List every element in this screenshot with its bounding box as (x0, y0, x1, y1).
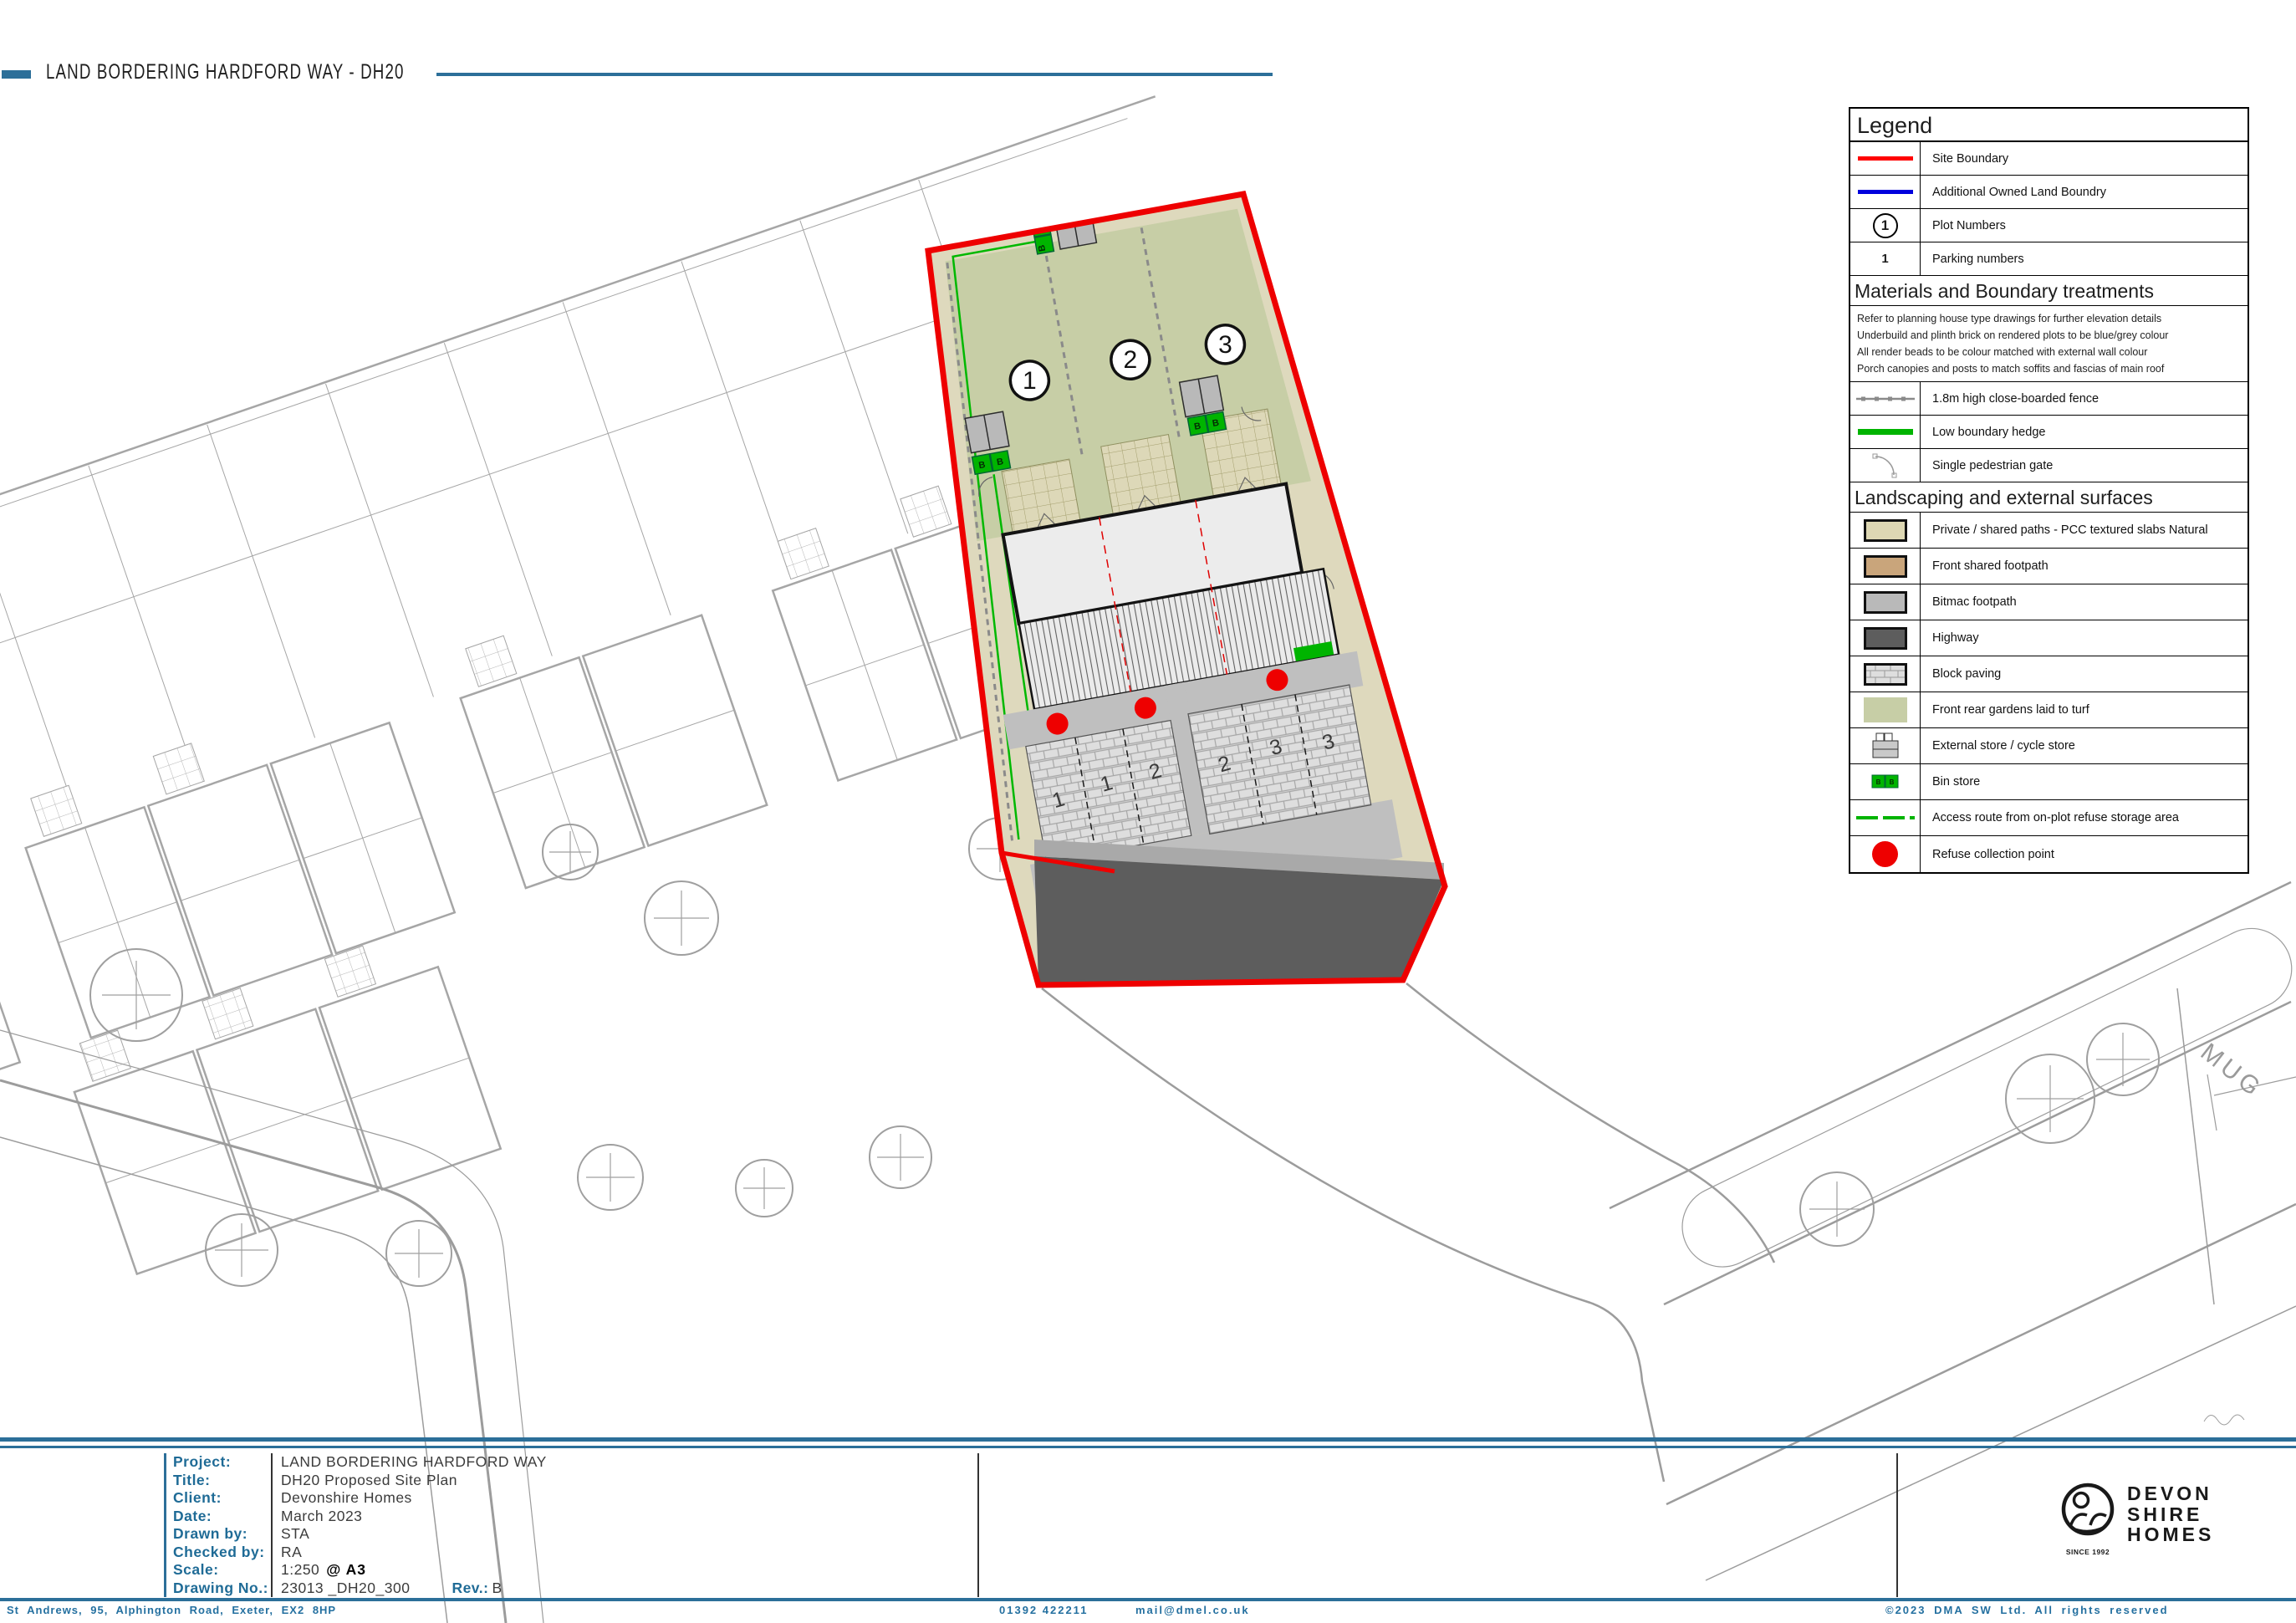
pedestrian-gate-icon (1869, 452, 1902, 480)
field-project: Project: LAND BORDERING HARDFORD WAY (166, 1453, 977, 1472)
legend-row-plot-numbers: 1 Plot Numbers (1850, 209, 2248, 242)
field-checked-by: Checked by: RA (166, 1544, 977, 1562)
legend-row-turf: Front rear gardens laid to turf (1850, 692, 2248, 728)
plot-number: 3 (1218, 331, 1232, 359)
field-date: Date: March 2023 (166, 1508, 977, 1526)
field-drawn-by: Drawn by: STA (166, 1525, 977, 1544)
block-paving-swatch (1864, 663, 1907, 686)
landscaping-section-title: Landscaping and external surfaces (1850, 482, 2248, 513)
footer-copyright: ©2023 DMA SW Ltd. All rights reserved (1885, 1604, 2169, 1616)
materials-notes: Refer to planning house type drawings fo… (1850, 306, 2248, 382)
footer-phone: 01392 422211 (999, 1604, 1088, 1616)
plot-number: 2 (1124, 346, 1138, 374)
legend-row-front-footpath: Front shared footpath (1850, 549, 2248, 584)
legend-row-hedge: Low boundary hedge (1850, 416, 2248, 449)
legend-row-refuse-point: Refuse collection point (1850, 836, 2248, 872)
legend-row-block-paving: Block paving (1850, 656, 2248, 692)
legend-row-gate: Single pedestrian gate (1850, 449, 2248, 482)
header-rule (436, 73, 1273, 76)
turf-swatch (1864, 697, 1907, 722)
street-name-label: MUG (2196, 1039, 2268, 1104)
legend-row-bin-store: B B Bin store (1850, 764, 2248, 800)
legend-panel: Legend Site Boundary Additional Owned La… (1849, 107, 2249, 874)
svg-text:B: B (1889, 778, 1894, 786)
field-drawing-no: Drawing No.: 23013 _DH20_300 Rev.: B (166, 1580, 977, 1598)
header-accent-dash (2, 70, 31, 79)
legend-row-owned-boundary: Additional Owned Land Boundry (1850, 176, 2248, 209)
footer-rule (0, 1598, 2296, 1601)
logo-tagline: SINCE 1992 (2059, 1548, 2117, 1556)
legend-row-fence: 1.8m high close-boarded fence (1850, 382, 2248, 416)
separator-line-top (0, 1437, 2296, 1442)
rev-value: B (492, 1580, 502, 1597)
owned-boundary-line-icon (1858, 190, 1913, 194)
bitmac-swatch (1864, 591, 1907, 614)
scale-paper-size: @ A3 (326, 1561, 366, 1579)
site-boundary-line-icon (1858, 156, 1913, 161)
parking-number-icon: 1 (1881, 252, 1888, 266)
bin-store-icon: B B (1870, 773, 1901, 790)
slabs-swatch (1864, 519, 1907, 542)
legend-row-bitmac: Bitmac footpath (1850, 584, 2248, 620)
plot-number-circle-icon: 1 (1873, 213, 1898, 238)
devonshire-homes-logo: SINCE 1992 DEVON SHIRE HOMES (2059, 1478, 2214, 1556)
field-title: Title: DH20 Proposed Site Plan (166, 1472, 977, 1490)
devonshire-homes-logo-mark (2059, 1478, 2117, 1544)
refuse-point-icon (1872, 841, 1898, 867)
field-client: Client: Devonshire Homes (166, 1489, 977, 1508)
field-scale: Scale: 1:250 @ A3 (166, 1561, 977, 1580)
footer-email: mail@dmel.co.uk (1135, 1604, 1250, 1616)
legend-row-access-route: Access route from on-plot refuse storage… (1850, 800, 2248, 836)
title-block-divider-a (977, 1453, 979, 1597)
materials-section-title: Materials and Boundary treatments (1850, 276, 2248, 306)
highway-swatch (1864, 627, 1907, 650)
legend-row-site-boundary: Site Boundary (1850, 142, 2248, 176)
legend-row-highway: Highway (1850, 620, 2248, 656)
close-boarded-fence-icon (1855, 395, 1916, 403)
legend-row-slabs: Private / shared paths - PCC textured sl… (1850, 513, 2248, 549)
access-route-line-icon (1855, 814, 1916, 821)
legend-row-parking-numbers: 1 Parking numbers (1850, 242, 2248, 276)
logo-wordmark: DEVON SHIRE HOMES (2127, 1478, 2214, 1556)
rev-label: Rev.: (452, 1580, 488, 1597)
footer-address: St Andrews, 95, Alphington Road, Exeter,… (7, 1604, 336, 1616)
title-block: Project: LAND BORDERING HARDFORD WAY Tit… (164, 1453, 977, 1597)
external-store-icon (1869, 731, 1902, 761)
legend-row-external-store: External store / cycle store (1850, 728, 2248, 764)
legend-title: Legend (1850, 109, 2248, 142)
hedge-line-icon (1858, 429, 1913, 435)
separator-line-top-thin (0, 1446, 2296, 1448)
plot-number: 1 (1023, 367, 1037, 395)
front-footpath-swatch (1864, 555, 1907, 578)
svg-text:B: B (1875, 778, 1880, 786)
title-block-divider-b (1896, 1453, 1898, 1597)
page-title: LAND BORDERING HARDFORD WAY - DH20 (46, 60, 405, 84)
